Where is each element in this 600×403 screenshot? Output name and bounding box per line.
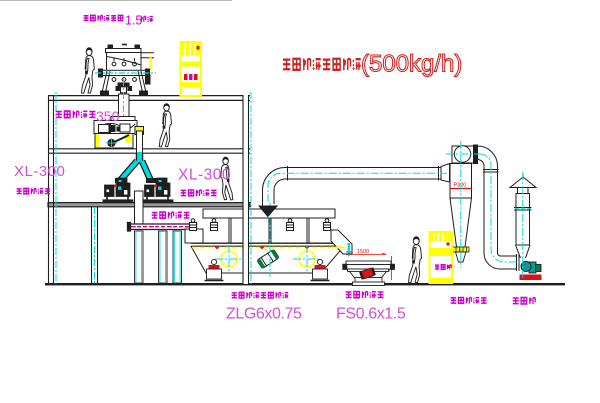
svg-text:P300: P300: [454, 183, 467, 189]
svg-text:FS0.6x1.5: FS0.6x1.5: [336, 306, 406, 323]
svg-text:350: 350: [96, 108, 120, 124]
svg-text:XL-300: XL-300: [178, 167, 231, 184]
svg-text:1500: 1500: [357, 249, 369, 255]
svg-text:(500kg/h): (500kg/h): [361, 51, 462, 78]
svg-text:ZLG6x0.75: ZLG6x0.75: [226, 306, 302, 323]
svg-text:XL-300: XL-300: [14, 163, 65, 180]
svg-text:1.5: 1.5: [125, 14, 142, 28]
